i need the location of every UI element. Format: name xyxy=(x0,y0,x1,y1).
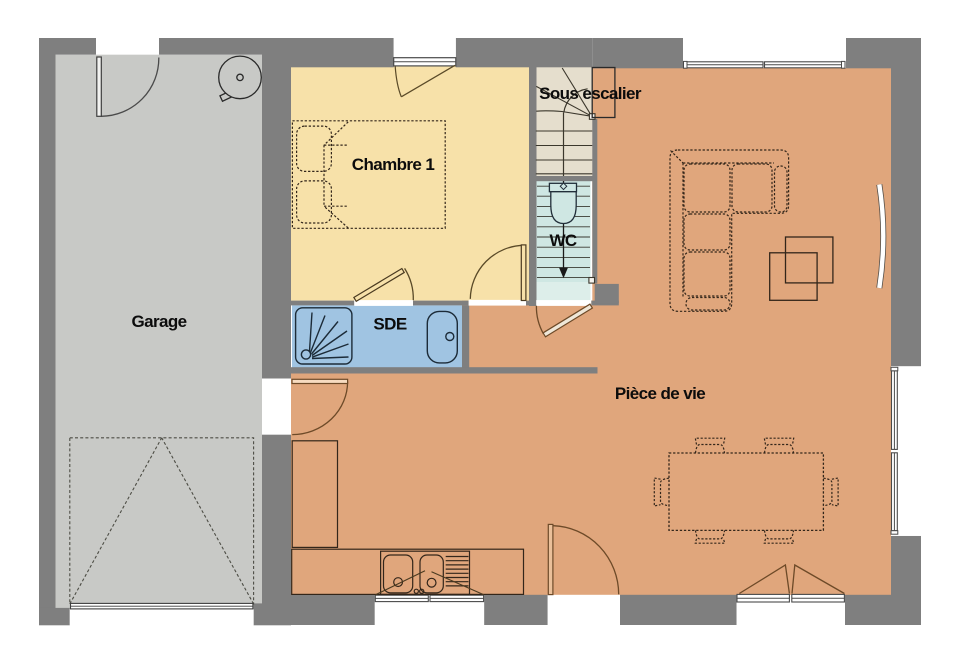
svg-text:WC: WC xyxy=(549,231,576,250)
svg-text:Chambre 1: Chambre 1 xyxy=(352,155,435,174)
svg-text:Sous escalier: Sous escalier xyxy=(539,84,642,103)
svg-text:Garage: Garage xyxy=(132,312,187,331)
svg-text:SDE: SDE xyxy=(373,315,406,334)
svg-text:Pièce de vie: Pièce de vie xyxy=(615,384,705,403)
